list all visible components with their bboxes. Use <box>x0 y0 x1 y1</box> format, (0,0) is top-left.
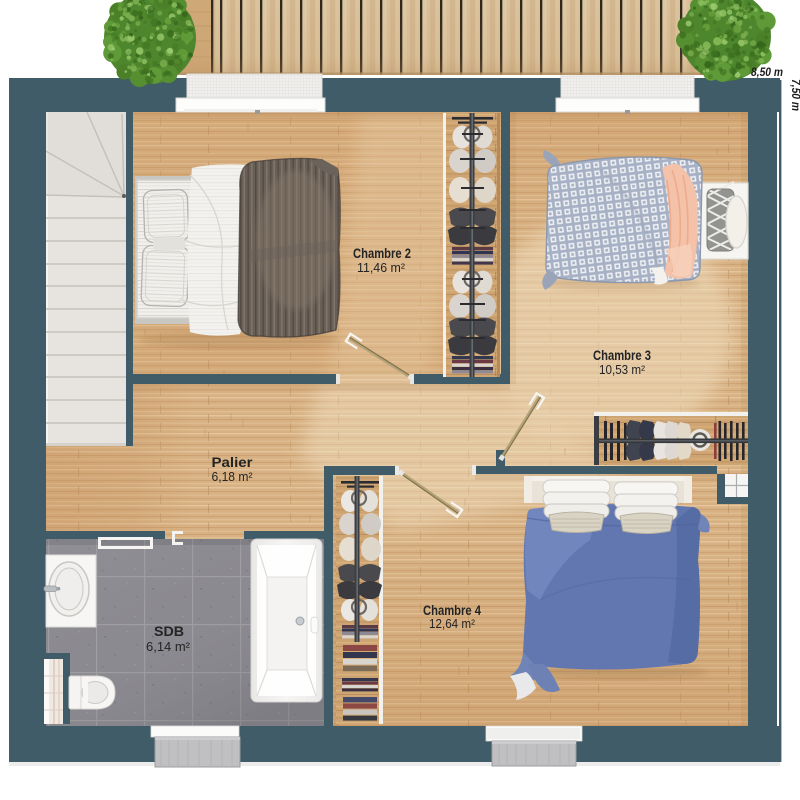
svg-text:Chambre 3: Chambre 3 <box>593 348 651 363</box>
svg-text:6,14 m²: 6,14 m² <box>146 640 190 654</box>
svg-text:Chambre 2: Chambre 2 <box>353 246 411 261</box>
svg-text:8,50 m: 8,50 m <box>751 65 783 79</box>
svg-text:SDB: SDB <box>154 624 184 639</box>
svg-text:7,50 m: 7,50 m <box>789 79 800 111</box>
svg-text:6,18 m²: 6,18 m² <box>212 470 253 484</box>
svg-text:Palier: Palier <box>212 455 254 470</box>
svg-text:11,46 m²: 11,46 m² <box>357 261 405 275</box>
svg-text:12,64 m²: 12,64 m² <box>429 617 475 631</box>
svg-text:10,53 m²: 10,53 m² <box>599 363 645 377</box>
svg-text:Chambre 4: Chambre 4 <box>423 603 481 618</box>
